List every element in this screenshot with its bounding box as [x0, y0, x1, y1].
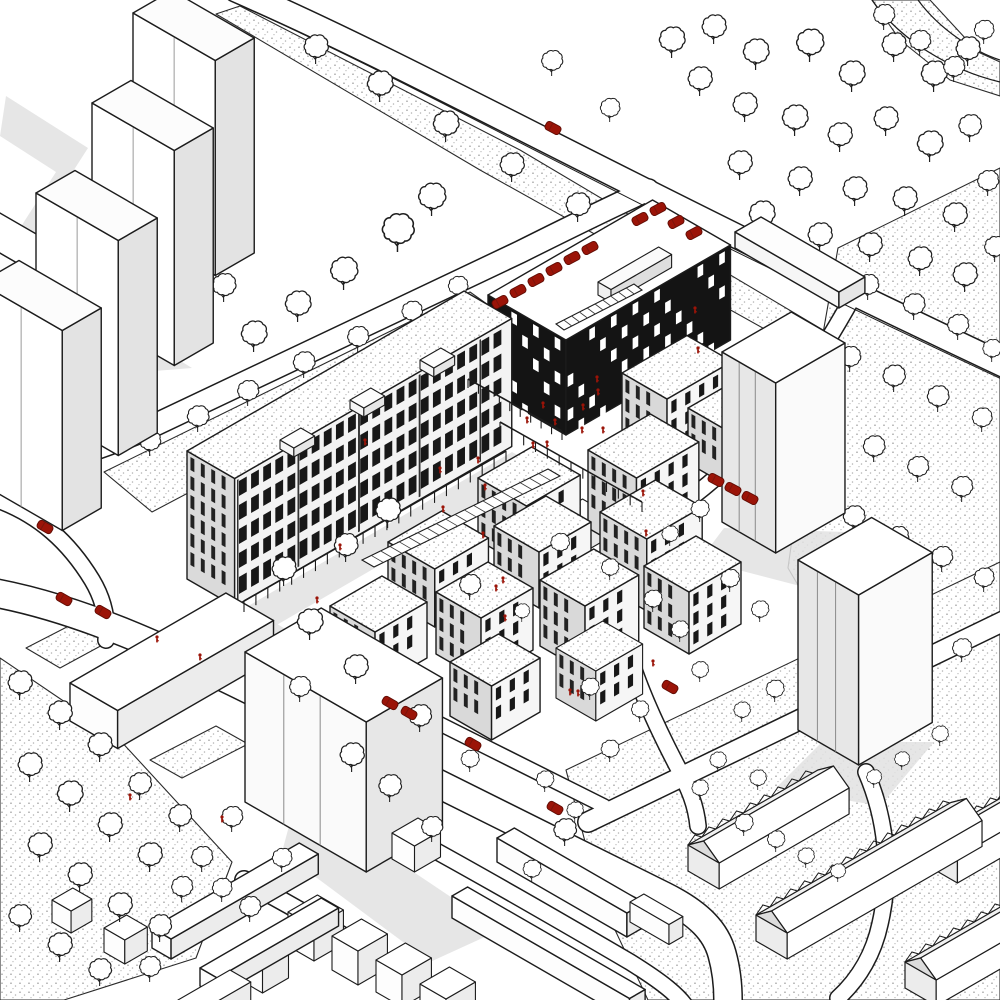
axonometric-masterplan-illustration	[0, 0, 1000, 1000]
masterplan-canvas	[0, 0, 1000, 1000]
